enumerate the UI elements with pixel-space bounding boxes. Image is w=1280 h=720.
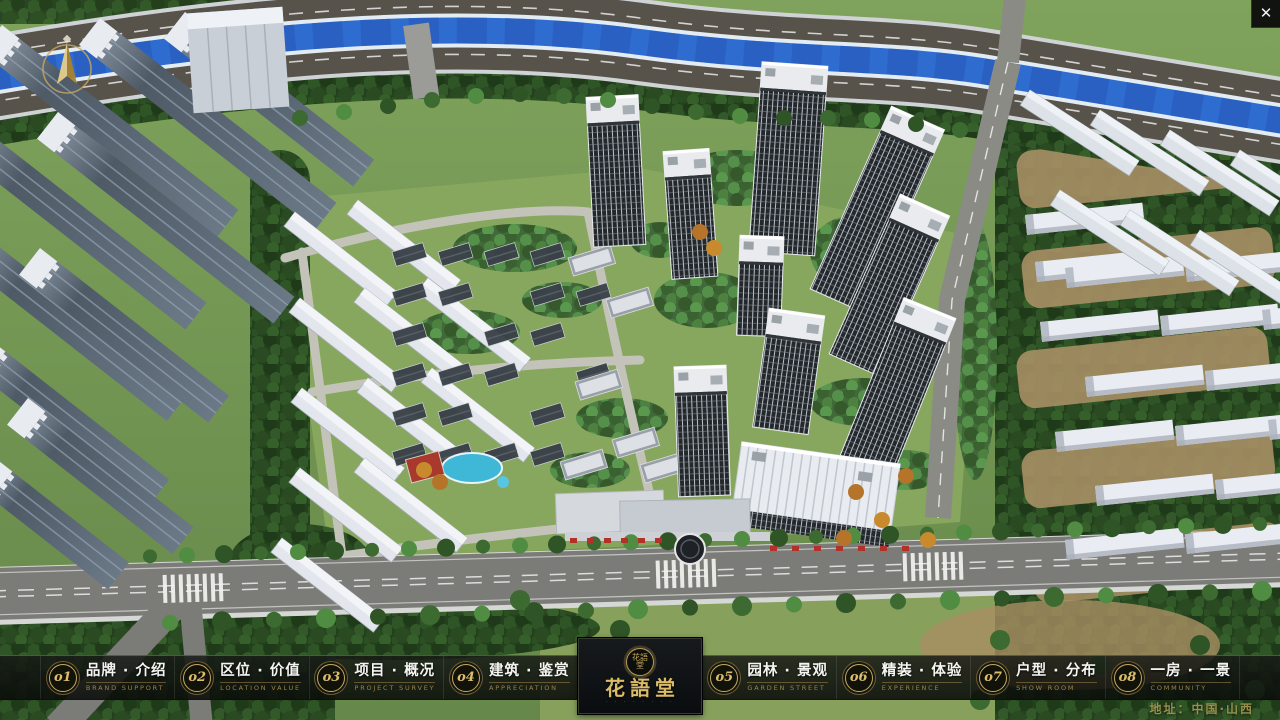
nav-label-en: GARDEN STREET xyxy=(747,682,828,692)
brand-title: 花語堂 xyxy=(600,678,680,698)
nav-label-en: SHOW ROOM xyxy=(1016,682,1097,692)
nav-label-zh: 精装 · 体验 xyxy=(882,664,963,679)
nav-label-zh: 项目 · 概况 xyxy=(354,664,435,679)
nav-label-zh: 区位 · 价值 xyxy=(220,664,301,679)
item-number-badge: o4 xyxy=(452,664,480,692)
item-number-badge: o2 xyxy=(183,664,211,692)
nav-label-zh: 园林 · 景观 xyxy=(747,664,828,679)
item-number-badge: o3 xyxy=(317,664,345,692)
nav-item-project-overview[interactable]: o3 项目 · 概况 PROJECT SURVEY xyxy=(309,656,443,699)
nav-item-brand-intro[interactable]: o1 品牌 · 介绍 BRAND SUPPORT xyxy=(40,656,174,699)
close-button[interactable]: ✕ xyxy=(1251,0,1280,28)
item-number-badge: o5 xyxy=(710,664,738,692)
nav-label-zh: 户型 · 分布 xyxy=(1016,664,1097,679)
item-number-badge: o6 xyxy=(845,664,873,692)
item-number-badge: o7 xyxy=(979,664,1007,692)
nav-item-room-view[interactable]: o8 一房 · 一景 COMMUNITY xyxy=(1105,656,1240,699)
nav-item-location-value[interactable]: o2 区位 · 价值 LOCATION VALUE xyxy=(174,656,308,699)
compass-north-icon xyxy=(34,34,100,100)
brand-logo-panel: 花語堂 花語堂 · · · · · · · · xyxy=(578,638,702,714)
nav-label-en: PROJECT SURVEY xyxy=(354,682,435,692)
item-number-badge: o8 xyxy=(1114,664,1142,692)
item-number-badge: o1 xyxy=(49,664,77,692)
project-address: 地址：中国·山西 xyxy=(1149,700,1254,717)
nav-item-interior-experience[interactable]: o6 精装 · 体验 EXPERIENCE xyxy=(836,656,970,699)
nav-item-garden-landscape[interactable]: o5 园林 · 景观 GARDEN STREET xyxy=(702,656,836,699)
brand-subtitle: · · · · · · · · xyxy=(606,700,675,705)
masterplan-render xyxy=(0,0,1280,720)
nav-item-architecture[interactable]: o4 建筑 · 鉴赏 APPRECIATION xyxy=(443,656,577,699)
nav-label-en: EXPERIENCE xyxy=(882,682,963,692)
brand-seal-icon: 花語堂 xyxy=(626,648,654,676)
nav-label-en: LOCATION VALUE xyxy=(220,682,301,692)
nav-label-zh: 建筑 · 鉴赏 xyxy=(489,664,570,679)
nav-label-zh: 一房 · 一景 xyxy=(1151,664,1232,679)
nav-label-zh: 品牌 · 介绍 xyxy=(86,664,167,679)
nav-label-en: APPRECIATION xyxy=(489,682,570,692)
sales-app-window: ✕ o1 品牌 · 介绍 BRAND SUPPORT o2 区位 · 价值 LO… xyxy=(0,0,1280,720)
nav-label-en: COMMUNITY xyxy=(1151,682,1232,692)
nav-label-en: BRAND SUPPORT xyxy=(86,682,167,692)
nav-item-floorplan-distribution[interactable]: o7 户型 · 分布 SHOW ROOM xyxy=(970,656,1104,699)
